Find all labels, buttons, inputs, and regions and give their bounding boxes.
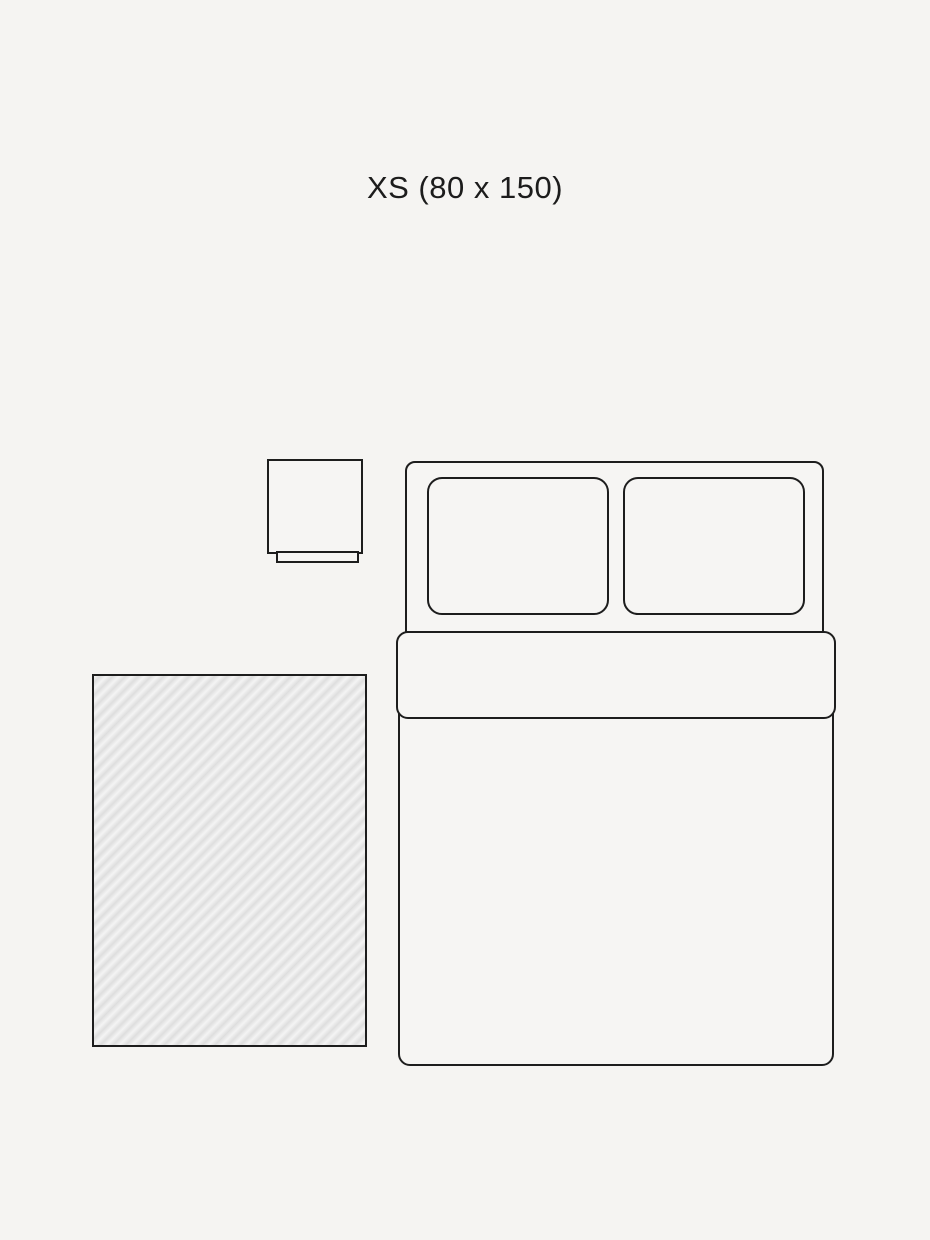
nightstand-icon <box>267 459 363 554</box>
rug-size-guide: XS (80 x 150) <box>0 0 930 1240</box>
nightstand-base-icon <box>276 551 359 563</box>
duvet-fold-icon <box>396 631 836 719</box>
rug-illustration <box>92 674 367 1047</box>
pillow-right-icon <box>623 477 805 615</box>
size-label: XS (80 x 150) <box>0 170 930 206</box>
pillow-left-icon <box>427 477 609 615</box>
